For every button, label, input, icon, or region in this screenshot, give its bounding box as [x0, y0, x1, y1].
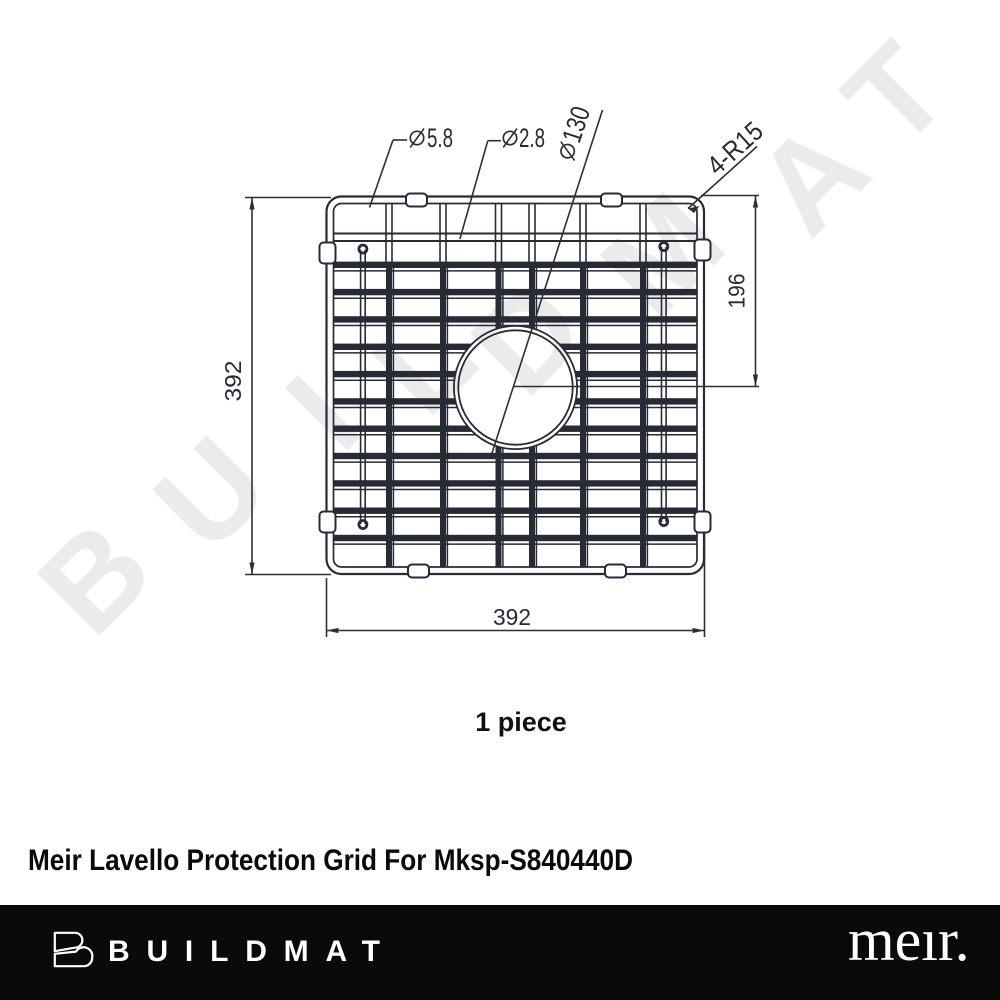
svg-text:130: 130 — [556, 103, 596, 147]
svg-text:BUILDMAT: BUILDMAT — [108, 935, 397, 968]
svg-text:U: U — [128, 411, 294, 577]
svg-text:1 piece: 1 piece — [475, 707, 567, 737]
svg-text:Meir Lavello Protection Grid F: Meir Lavello Protection Grid For Mksp-S8… — [28, 844, 633, 877]
svg-text:B: B — [12, 495, 178, 661]
svg-text:2.8: 2.8 — [519, 123, 545, 153]
svg-text:196: 196 — [724, 274, 750, 309]
svg-text:392: 392 — [493, 604, 531, 630]
svg-text:meır.: meır. — [848, 907, 970, 973]
svg-text:392: 392 — [220, 361, 246, 402]
svg-text:5.8: 5.8 — [427, 123, 453, 153]
